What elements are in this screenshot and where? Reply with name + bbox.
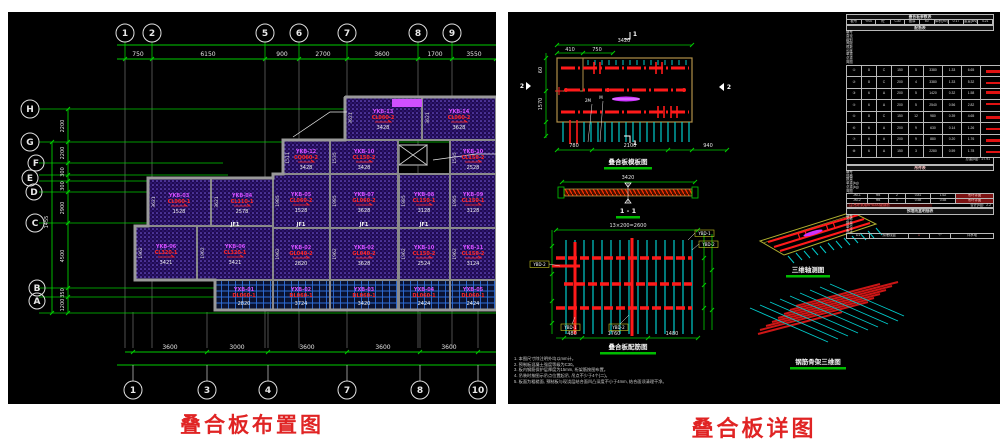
rebar-tags: YBD-1 YBD-2 YBD-2 YBD-1 YBD-2 bbox=[530, 230, 718, 331]
svg-text:YBD-2: YBD-2 bbox=[611, 325, 625, 330]
svg-text:2528: 2528 bbox=[467, 165, 480, 171]
svg-text:YBD-1: YBD-1 bbox=[697, 231, 711, 236]
note-line: 5. 板面为粗糙面, 预制板与现浇层结合面凹凸深度不小于4mm, 结合面须清理干… bbox=[514, 379, 774, 385]
bar-sketch bbox=[986, 151, 1000, 153]
section-1-1: 3420 1 - 1 bbox=[558, 175, 698, 219]
dim-text: 3600 bbox=[375, 344, 390, 351]
svg-text:1528: 1528 bbox=[173, 209, 186, 215]
right-caption: 叠合板详图 bbox=[508, 411, 1000, 441]
grid-bubble-label: 9 bbox=[449, 29, 455, 39]
svg-text:DL060-1: DL060-1 bbox=[232, 293, 256, 299]
svg-text:CL150-2: CL150-2 bbox=[462, 251, 485, 257]
grid-bubble-label: 2 bbox=[149, 29, 155, 39]
joint-label: JF1 bbox=[296, 222, 306, 228]
svg-text:DL060-1: DL060-1 bbox=[461, 293, 485, 299]
detail-title: 三维轴测图 bbox=[792, 265, 825, 274]
dim-text: 3000 bbox=[229, 344, 244, 351]
grid-bubble-label: 5 bbox=[262, 29, 268, 39]
svg-text:GL040-2: GL040-2 bbox=[352, 251, 376, 257]
svg-text:GL060-2: GL060-2 bbox=[352, 198, 376, 204]
row-grid-bubbles: H G F E D C B A bbox=[21, 100, 45, 309]
svg-text:2424: 2424 bbox=[418, 301, 431, 307]
grid-bubble-label: F bbox=[33, 159, 39, 169]
cad-screenshot: 750 6150 900 2700 3600 1700 3550 1 2 5 6 bbox=[0, 0, 1000, 441]
svg-text:3621: 3621 bbox=[348, 112, 354, 124]
dim-text: 1480 bbox=[666, 331, 679, 337]
svg-text:1: 1 bbox=[633, 31, 637, 38]
svg-text:1985: 1985 bbox=[275, 195, 281, 207]
rebar-row: ⑦6 A200 9880 0.201.76 bbox=[847, 134, 1000, 146]
grid-bubble-label: C bbox=[32, 219, 39, 229]
svg-text:CL060-2: CL060-2 bbox=[290, 198, 313, 204]
svg-text:CL150-1: CL150-1 bbox=[462, 198, 485, 204]
bottom-dimension-lines: 3600 3000 3600 3600 3600 bbox=[117, 344, 496, 381]
dim-text: 410 bbox=[565, 47, 575, 53]
bar-sketch bbox=[986, 82, 1000, 84]
dim-text: 3600 bbox=[162, 344, 177, 351]
dim-text: 3550 bbox=[466, 51, 481, 58]
svg-text:1962: 1962 bbox=[332, 248, 338, 260]
dim-text: 3600 bbox=[441, 344, 456, 351]
dim-text: 300 bbox=[60, 167, 66, 177]
svg-text:CL110-1: CL110-1 bbox=[231, 199, 254, 205]
detail-title: 钢筋骨架三维图 bbox=[795, 357, 841, 366]
formwork-detail: 3420 410 750 60 1570 bbox=[520, 31, 731, 170]
dim-text: 1200 bbox=[60, 299, 66, 312]
grid-bubble-label: 8 bbox=[417, 386, 423, 396]
svg-text:3724: 3724 bbox=[295, 301, 308, 307]
grid-bubble-label: B bbox=[34, 284, 41, 294]
bar-sketch bbox=[986, 103, 1000, 105]
svg-text:1962: 1962 bbox=[275, 248, 281, 260]
top-dimension-lines: 750 6150 900 2700 3600 1700 3550 bbox=[117, 42, 496, 61]
svg-text:2: 2 bbox=[727, 84, 731, 91]
rebar-detail: 13×200=2600 YBD-1 bbox=[530, 223, 718, 355]
svg-text:2424: 2424 bbox=[467, 301, 480, 307]
rebar-row: ⑧6 A150 32280 0.591.78 bbox=[847, 146, 1000, 158]
bar-sketch bbox=[986, 116, 1000, 118]
svg-text:3621: 3621 bbox=[425, 112, 431, 124]
embed-table-body: D1 预埋线盒 1 个 详水电 bbox=[846, 233, 994, 239]
dim-text: 60 bbox=[538, 67, 544, 73]
svg-text:2578: 2578 bbox=[236, 209, 249, 215]
svg-text:YBD-2: YBD-2 bbox=[532, 262, 546, 267]
grid-bubble-label: A bbox=[34, 297, 41, 307]
grid-bubble-label: 4 bbox=[265, 386, 271, 396]
svg-text:CL060-2: CL060-2 bbox=[372, 115, 395, 121]
svg-text:1985: 1985 bbox=[401, 195, 407, 207]
svg-text:3628: 3628 bbox=[358, 261, 371, 267]
void-box bbox=[399, 145, 427, 165]
svg-text:CL320-1: CL320-1 bbox=[224, 250, 247, 256]
lift-total: 合计(kg)：2.2 bbox=[932, 204, 993, 208]
svg-text:CL150-1: CL150-1 bbox=[413, 198, 436, 204]
svg-text:3124: 3124 bbox=[467, 261, 480, 267]
svg-text:CL320-1: CL320-1 bbox=[155, 250, 178, 256]
grid-bubble-label: 3 bbox=[204, 386, 210, 396]
dim-text: 750 bbox=[592, 47, 602, 53]
svg-text:3128: 3128 bbox=[418, 208, 431, 214]
dim-text: 1570 bbox=[538, 98, 544, 111]
svg-text:GL040-2: GL040-2 bbox=[289, 251, 313, 257]
grid-bubble-label: 7 bbox=[344, 29, 350, 39]
grid-bubble-label: 7 bbox=[344, 386, 350, 396]
svg-text:3421: 3421 bbox=[160, 260, 173, 266]
svg-text:YBD-2: YBD-2 bbox=[701, 242, 715, 247]
highlight-strip bbox=[392, 99, 422, 107]
dim-text: 780 bbox=[569, 143, 579, 149]
svg-text:CQ060-2: CQ060-2 bbox=[294, 155, 318, 161]
rebar-header-row: 编号直径级别间距根数长度单重总重简图 bbox=[846, 31, 994, 65]
rebar-table-body: ①8 C150 53380 1.336.65 ②8 C200 43380 1.3… bbox=[846, 65, 1000, 158]
layout-plan-panel: 750 6150 900 2700 3600 1700 3550 1 2 5 6 bbox=[8, 12, 496, 404]
svg-text:DL060-1: DL060-1 bbox=[352, 293, 376, 299]
svg-text:3421: 3421 bbox=[229, 260, 242, 266]
grid-bubble-label: 8 bbox=[415, 29, 421, 39]
joint-label: JF1 bbox=[419, 222, 429, 228]
left-dimension-lines: 2200 2200 300 300 2900 4500 350 1200 145… bbox=[44, 107, 70, 315]
svg-text:1962: 1962 bbox=[452, 248, 458, 260]
dim-text: 940 bbox=[703, 143, 713, 149]
rebar-row: ⑤8 C150 12980 0.394.65 bbox=[847, 111, 1000, 123]
svg-text:2820: 2820 bbox=[295, 261, 308, 267]
svg-text:3628: 3628 bbox=[453, 125, 466, 131]
floor-plan-drawing: 750 6150 900 2700 3600 1700 3550 1 2 5 6 bbox=[8, 12, 496, 404]
general-notes: 1. 本图尺寸除注明外均以mm计。2. 预制板混凝土强度等级为C30。3. 板内… bbox=[514, 356, 774, 384]
grid-bubble-label: G bbox=[26, 138, 33, 148]
svg-text:CL060-1: CL060-1 bbox=[168, 199, 191, 205]
bar-tag: 2M bbox=[585, 98, 592, 103]
detail-title: 叠合板模板图 bbox=[609, 157, 649, 166]
svg-text:CL150-2: CL150-2 bbox=[353, 155, 376, 161]
svg-text:1962: 1962 bbox=[200, 247, 206, 259]
rebar-table-head: 编号直径级别间距根数长度单重总重简图 bbox=[846, 31, 994, 65]
grid-bubble-label: 6 bbox=[296, 29, 302, 39]
lift-note: 注:吊环采用HPB300级钢筋 bbox=[847, 204, 932, 208]
rebar-row: ④6 A200 52540 0.562.82 ◂ bbox=[847, 100, 1000, 112]
svg-text:3621: 3621 bbox=[214, 196, 220, 208]
dim-text: 1455 bbox=[44, 216, 50, 229]
dim-text: 1760 bbox=[608, 331, 621, 337]
embed-row: D1 预埋线盒 1 个 详水电 bbox=[847, 234, 994, 239]
svg-text:3628: 3628 bbox=[358, 208, 371, 214]
left-caption: 叠合板布置图 bbox=[8, 409, 496, 439]
dim-text: 480 bbox=[567, 331, 577, 337]
dim-text: 2200 bbox=[60, 120, 66, 133]
detail-title: 叠合板配筋图 bbox=[609, 342, 649, 351]
detail-title: 1 - 1 bbox=[620, 207, 637, 215]
dim-text: 3420 bbox=[622, 175, 635, 181]
top-grid-bubbles: 1 2 5 6 7 8 9 bbox=[116, 24, 461, 42]
dim-text: 1700 bbox=[427, 51, 442, 58]
svg-text:3128: 3128 bbox=[467, 208, 480, 214]
dim-text: 2100 bbox=[624, 143, 637, 149]
svg-text:1528: 1528 bbox=[295, 208, 308, 214]
svg-text:3621: 3621 bbox=[151, 196, 157, 208]
dim-text: 2700 bbox=[315, 51, 330, 58]
svg-text:3428: 3428 bbox=[300, 165, 313, 171]
detail-panel: 3420 410 750 60 1570 bbox=[508, 12, 1000, 404]
grid-bubble-label: H bbox=[26, 105, 34, 115]
bar-sketch bbox=[986, 91, 1000, 93]
bar-sketch bbox=[986, 128, 1000, 130]
dim-text: 750 bbox=[132, 51, 144, 58]
svg-text:1511: 1511 bbox=[285, 152, 291, 164]
dim-text: 13×200=2600 bbox=[609, 223, 646, 229]
svg-text:1985: 1985 bbox=[332, 195, 338, 207]
joint-label: JF1 bbox=[230, 222, 240, 228]
svg-text:1962: 1962 bbox=[401, 248, 407, 260]
bar-sketch bbox=[986, 139, 1000, 141]
grid-bubble-label: E bbox=[27, 174, 33, 184]
rebar-row: ①8 C150 53380 1.336.65 bbox=[847, 65, 1000, 77]
grid-bubble-label: 1 bbox=[122, 29, 128, 39]
svg-text:2: 2 bbox=[520, 83, 524, 90]
dim-text: 4500 bbox=[60, 250, 66, 263]
svg-text:1535: 1535 bbox=[332, 152, 338, 164]
rebar-row: ③6 A200 51420 0.321.58 ◂ bbox=[847, 88, 1000, 100]
bar-tag: M bbox=[599, 95, 603, 100]
svg-text:DL060-1: DL060-1 bbox=[289, 293, 313, 299]
dim-text: 2900 bbox=[60, 202, 66, 215]
svg-text:3420: 3420 bbox=[358, 301, 371, 307]
svg-text:2820: 2820 bbox=[238, 301, 251, 307]
svg-text:2524: 2524 bbox=[418, 261, 431, 267]
grid-bubble-label: 1 bbox=[130, 386, 136, 396]
dim-text: 900 bbox=[276, 51, 288, 58]
svg-text:YBD-1: YBD-1 bbox=[563, 325, 577, 330]
svg-text:1535: 1535 bbox=[452, 152, 458, 164]
dim-text: 6150 bbox=[200, 51, 215, 58]
svg-text:CL150-2: CL150-2 bbox=[462, 155, 485, 161]
dim-text: 2200 bbox=[60, 147, 66, 160]
rebar-row: ⑥6 A200 9630 0.141.26 bbox=[847, 123, 1000, 135]
svg-text:3428: 3428 bbox=[358, 165, 371, 171]
slab-schedule-table: 叠合板参数表 板号YKB砼C30板厚60体积(m³)0.17重量(kN)4.21… bbox=[846, 14, 994, 239]
svg-text:DL060-1: DL060-1 bbox=[412, 293, 436, 299]
grid-bubble-label: 10 bbox=[472, 386, 485, 396]
svg-text:CL150-2: CL150-2 bbox=[413, 251, 436, 257]
rebar-total: 总重(kg)：27.91 bbox=[846, 158, 994, 165]
svg-text:1962: 1962 bbox=[138, 247, 144, 259]
dim-text: 300 bbox=[60, 181, 66, 191]
svg-text:1985: 1985 bbox=[452, 195, 458, 207]
dim-text: 3600 bbox=[299, 344, 314, 351]
bar-sketch bbox=[986, 70, 1000, 72]
rebar-row: ②8 C200 43380 1.335.32 bbox=[847, 77, 1000, 89]
bottom-grid-bubbles: 1 3 4 7 8 10 bbox=[124, 381, 487, 399]
svg-text:3428: 3428 bbox=[377, 125, 390, 131]
dim-text: 3600 bbox=[374, 51, 389, 58]
grid-bubble-label: D bbox=[30, 188, 37, 198]
dim-text: 350 bbox=[60, 288, 66, 298]
svg-text:CL060-2: CL060-2 bbox=[448, 115, 471, 121]
joint-label: JF1 bbox=[359, 222, 369, 228]
